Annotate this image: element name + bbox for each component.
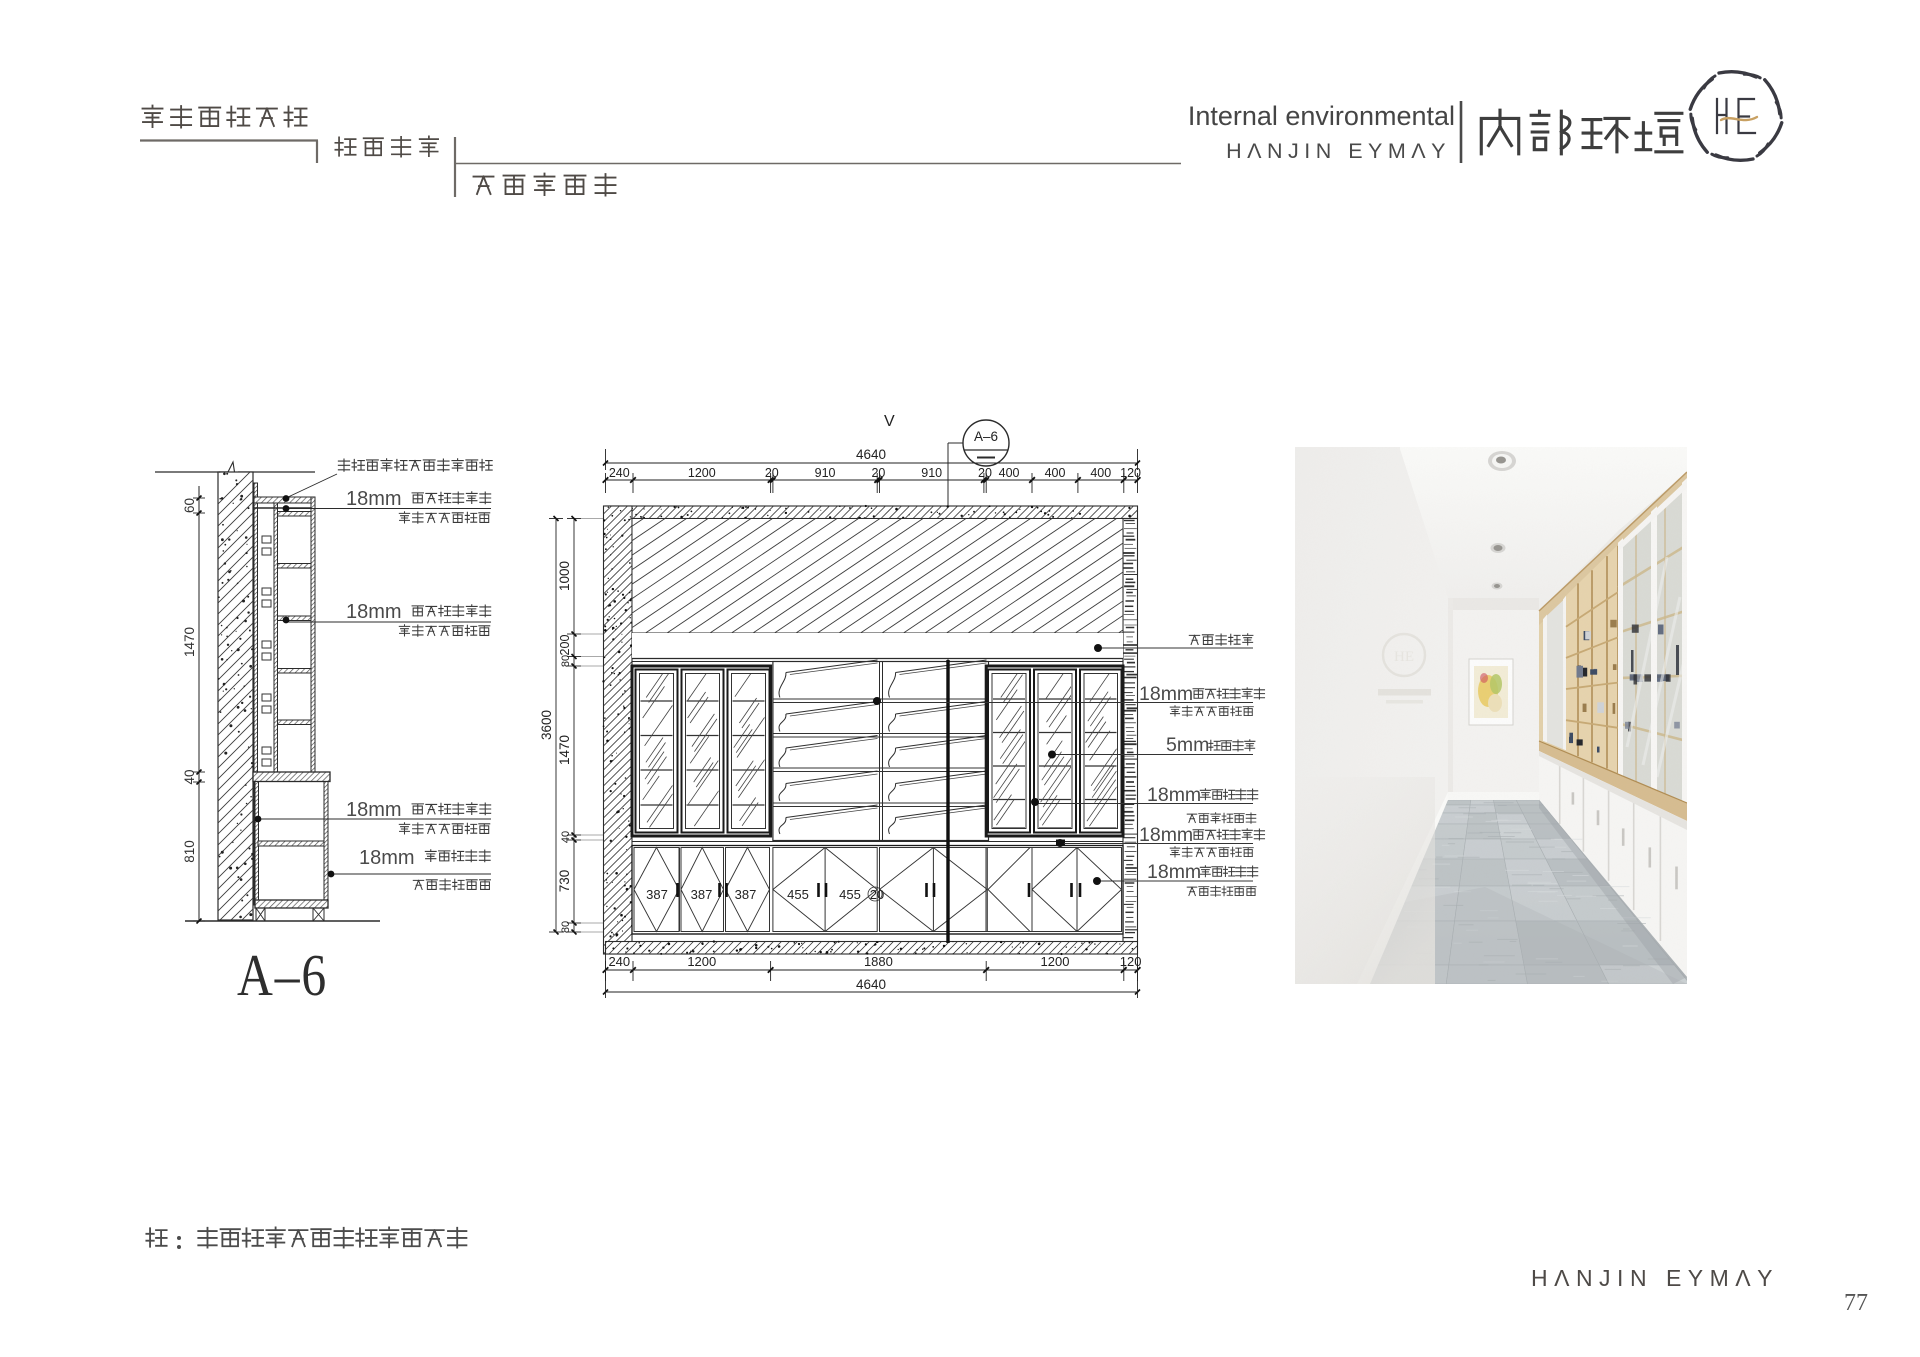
svg-text:1200: 1200 [687,954,716,969]
svg-text:18mm: 18mm [1139,824,1193,846]
svg-text:387: 387 [735,887,757,902]
svg-text:A–6: A–6 [974,429,998,444]
svg-text:V: V [884,413,895,430]
svg-text:20: 20 [871,466,885,480]
svg-text:18mm: 18mm [1147,784,1201,806]
svg-text:387: 387 [691,887,713,902]
svg-text:20: 20 [765,466,779,480]
svg-text:60: 60 [182,498,197,513]
svg-text:18mm: 18mm [359,847,415,869]
svg-text:18mm: 18mm [346,601,402,623]
svg-text:240: 240 [608,954,630,969]
svg-text:80: 80 [560,921,572,933]
svg-text:400: 400 [999,466,1020,480]
svg-text:Internal environmental: Internal environmental [1188,101,1455,131]
svg-text:3600: 3600 [539,710,554,740]
svg-text:400: 400 [1090,466,1111,480]
svg-text:240: 240 [609,466,630,480]
svg-text:200: 200 [558,635,572,656]
svg-text:4640: 4640 [856,977,886,992]
svg-text:HΛNJIN EYMΛY: HΛNJIN EYMΛY [1226,139,1451,163]
svg-text:1880: 1880 [864,954,893,969]
svg-text:40: 40 [182,769,197,784]
svg-text:810: 810 [182,840,197,863]
svg-text:4640: 4640 [856,447,886,462]
svg-text:18mm: 18mm [1139,683,1193,705]
svg-text:40: 40 [560,831,572,843]
svg-text:910: 910 [921,466,942,480]
svg-text:455: 455 [839,887,861,902]
svg-text:18mm: 18mm [346,488,402,510]
svg-text:77: 77 [1844,1290,1868,1316]
svg-text:5mm: 5mm [1166,734,1209,756]
svg-text:730: 730 [557,870,572,893]
svg-text:455: 455 [787,887,809,902]
svg-text:18mm: 18mm [346,799,402,821]
svg-text:18mm: 18mm [1147,861,1201,883]
svg-text:20: 20 [978,466,992,480]
svg-text:120: 120 [1120,466,1141,480]
svg-text:910: 910 [815,466,836,480]
svg-text:400: 400 [1045,466,1066,480]
svg-text:A–6: A–6 [237,942,328,1008]
svg-text:387: 387 [646,887,668,902]
svg-text:1200: 1200 [688,466,716,480]
svg-text:1470: 1470 [182,627,197,657]
svg-text:120: 120 [1120,954,1142,969]
svg-text:1470: 1470 [557,735,572,765]
svg-text:HΛNJIN EYMΛY: HΛNJIN EYMΛY [1531,1265,1779,1291]
svg-text:1000: 1000 [557,561,572,591]
svg-text:80: 80 [560,655,572,667]
svg-text:1200: 1200 [1041,954,1070,969]
